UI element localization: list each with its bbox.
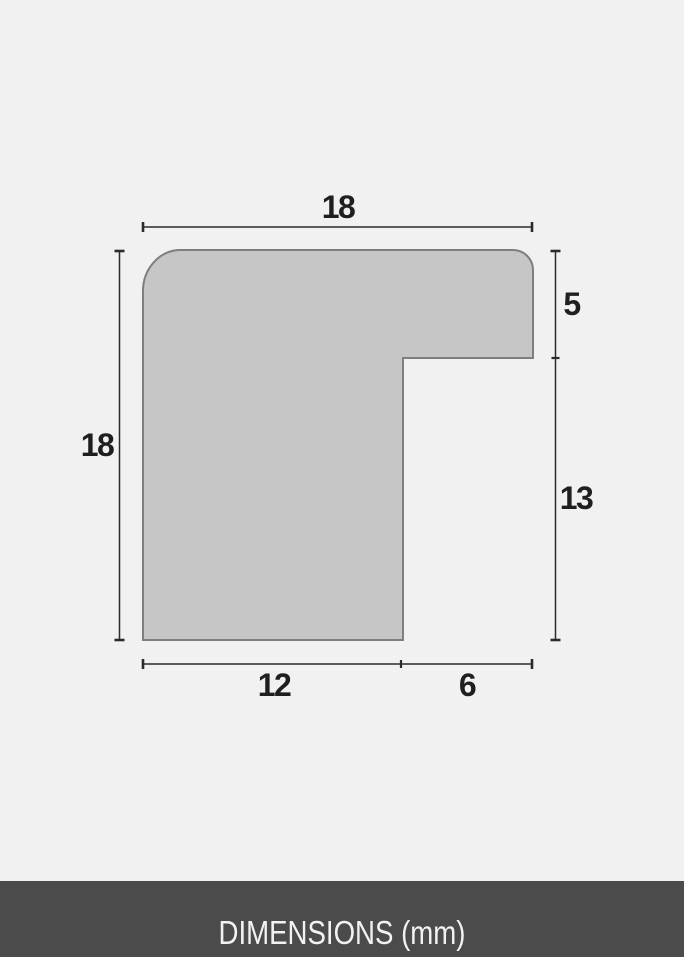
svg-text:13: 13 <box>560 480 593 516</box>
svg-text:12: 12 <box>258 667 291 703</box>
svg-text:DIMENSIONS (mm): DIMENSIONS (mm) <box>219 914 466 951</box>
svg-text:18: 18 <box>81 427 114 463</box>
svg-text:5: 5 <box>563 286 580 322</box>
svg-text:6: 6 <box>459 667 476 703</box>
svg-text:18: 18 <box>322 189 355 225</box>
